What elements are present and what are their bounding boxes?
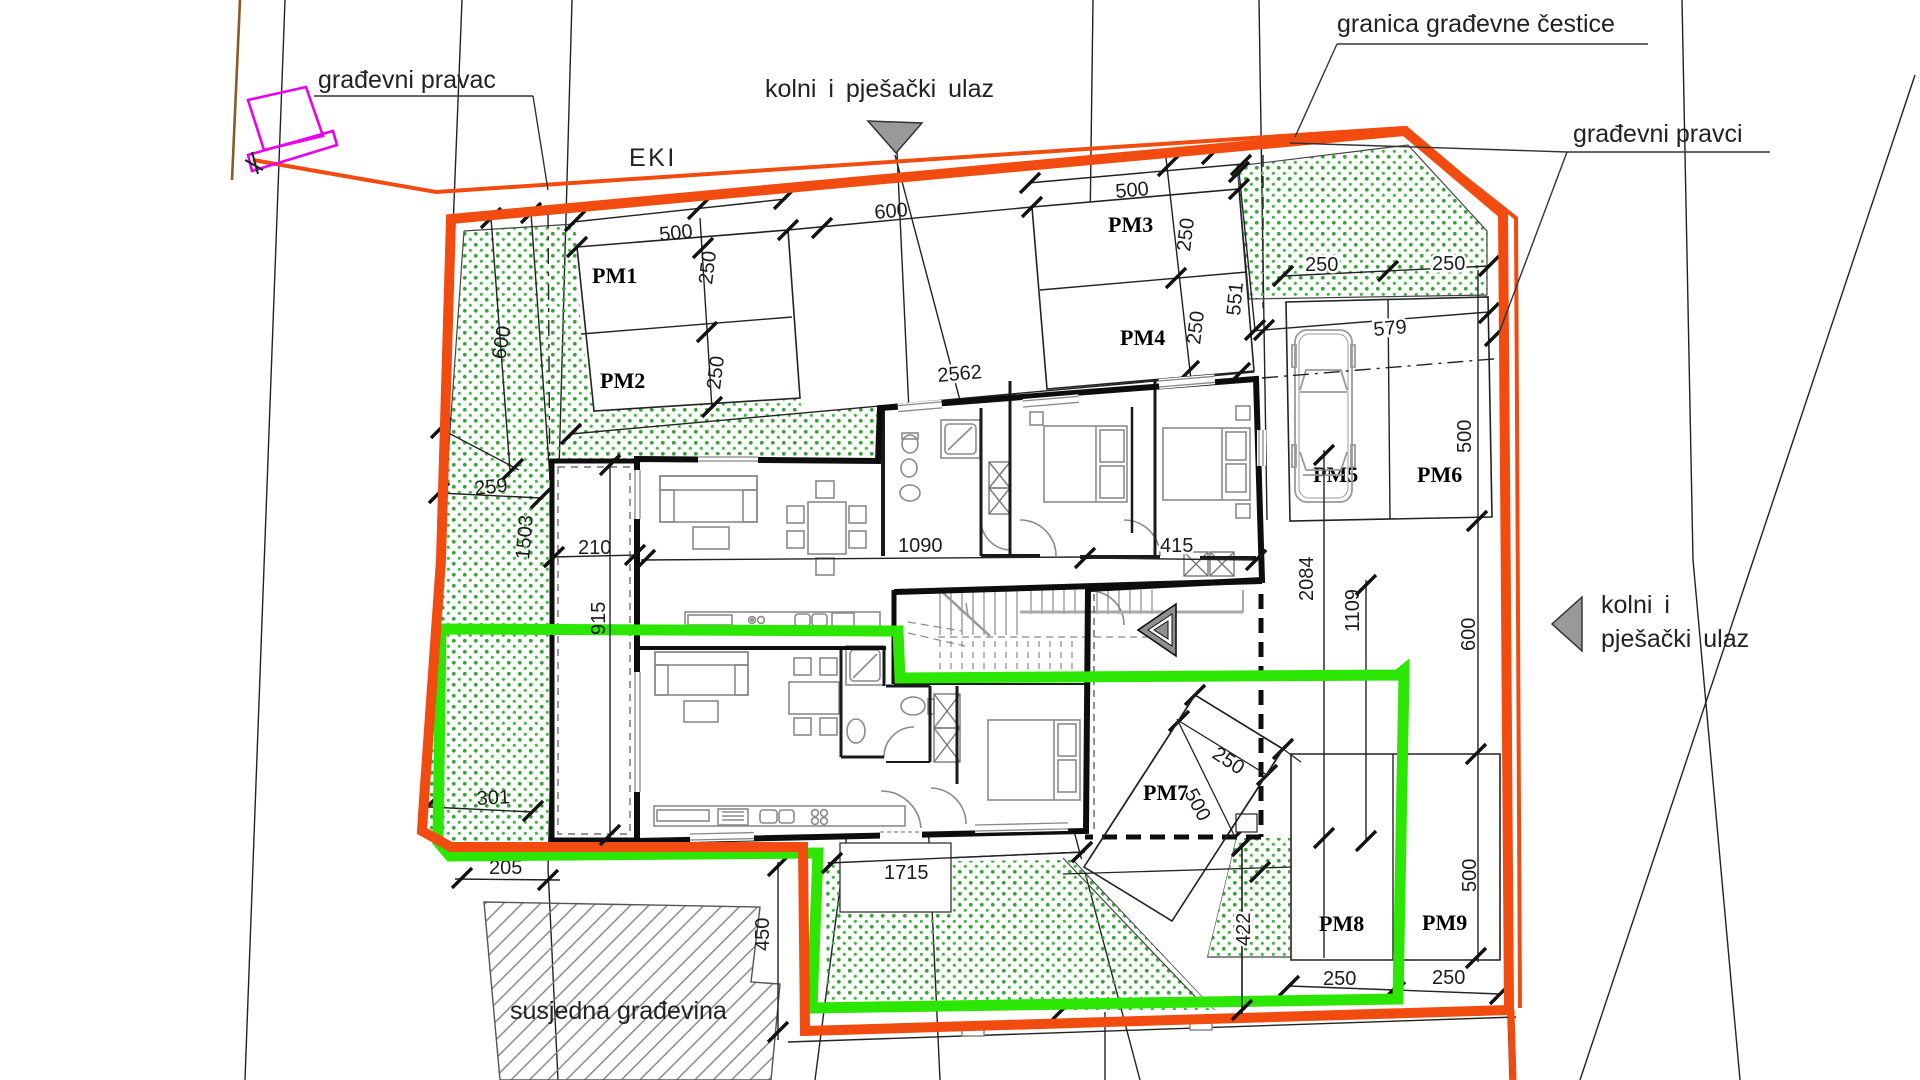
svg-text:250: 250 bbox=[1432, 253, 1465, 275]
svg-text:PM6: PM6 bbox=[1417, 462, 1462, 487]
svg-text:250: 250 bbox=[703, 355, 729, 391]
svg-text:579: 579 bbox=[1373, 316, 1408, 341]
svg-text:2084: 2084 bbox=[1296, 557, 1318, 602]
svg-text:PM2: PM2 bbox=[600, 368, 645, 393]
svg-text:PM3: PM3 bbox=[1108, 212, 1153, 237]
svg-text:250: 250 bbox=[695, 250, 721, 286]
svg-text:PM9: PM9 bbox=[1422, 910, 1467, 935]
svg-text:500: 500 bbox=[1459, 859, 1481, 892]
svg-text:pješački ulaz: pješački ulaz bbox=[1601, 625, 1749, 653]
svg-text:1715: 1715 bbox=[884, 862, 929, 884]
svg-text:susjedna građevina: susjedna građevina bbox=[510, 997, 727, 1025]
svg-text:600: 600 bbox=[1458, 618, 1480, 651]
svg-text:250: 250 bbox=[1323, 968, 1356, 990]
svg-text:PM8: PM8 bbox=[1319, 911, 1364, 936]
svg-text:2562: 2562 bbox=[937, 361, 983, 387]
svg-text:259: 259 bbox=[473, 475, 508, 500]
svg-text:500: 500 bbox=[1115, 178, 1150, 203]
svg-text:kolni i: kolni i bbox=[1601, 591, 1670, 619]
svg-text:EKI: EKI bbox=[629, 144, 677, 172]
svg-text:PM7: PM7 bbox=[1143, 780, 1188, 805]
svg-text:250: 250 bbox=[1173, 217, 1199, 253]
svg-text:građevni pravci: građevni pravci bbox=[1573, 120, 1743, 148]
svg-text:500: 500 bbox=[658, 221, 693, 246]
svg-text:kolni i pješački ulaz: kolni i pješački ulaz bbox=[765, 75, 994, 103]
svg-text:granica građevne čestice: granica građevne čestice bbox=[1337, 10, 1615, 38]
svg-text:422: 422 bbox=[1233, 913, 1255, 946]
svg-text:551: 551 bbox=[1223, 281, 1248, 316]
svg-text:PM4: PM4 bbox=[1120, 325, 1165, 350]
svg-text:415: 415 bbox=[1160, 535, 1193, 557]
svg-text:250: 250 bbox=[1432, 967, 1465, 989]
svg-text:301: 301 bbox=[476, 786, 510, 810]
svg-text:PM1: PM1 bbox=[592, 263, 637, 288]
svg-text:450: 450 bbox=[752, 918, 774, 951]
svg-text:500: 500 bbox=[1454, 420, 1476, 453]
svg-text:210: 210 bbox=[578, 537, 611, 559]
svg-text:1090: 1090 bbox=[898, 535, 943, 557]
svg-text:1109: 1109 bbox=[1342, 589, 1364, 632]
svg-text:250: 250 bbox=[1305, 254, 1338, 276]
svg-text:600: 600 bbox=[874, 199, 909, 224]
svg-text:1503: 1503 bbox=[512, 514, 538, 560]
svg-text:građevni pravac: građevni pravac bbox=[318, 66, 496, 94]
svg-text:915: 915 bbox=[588, 602, 610, 635]
svg-text:250: 250 bbox=[1183, 310, 1209, 346]
